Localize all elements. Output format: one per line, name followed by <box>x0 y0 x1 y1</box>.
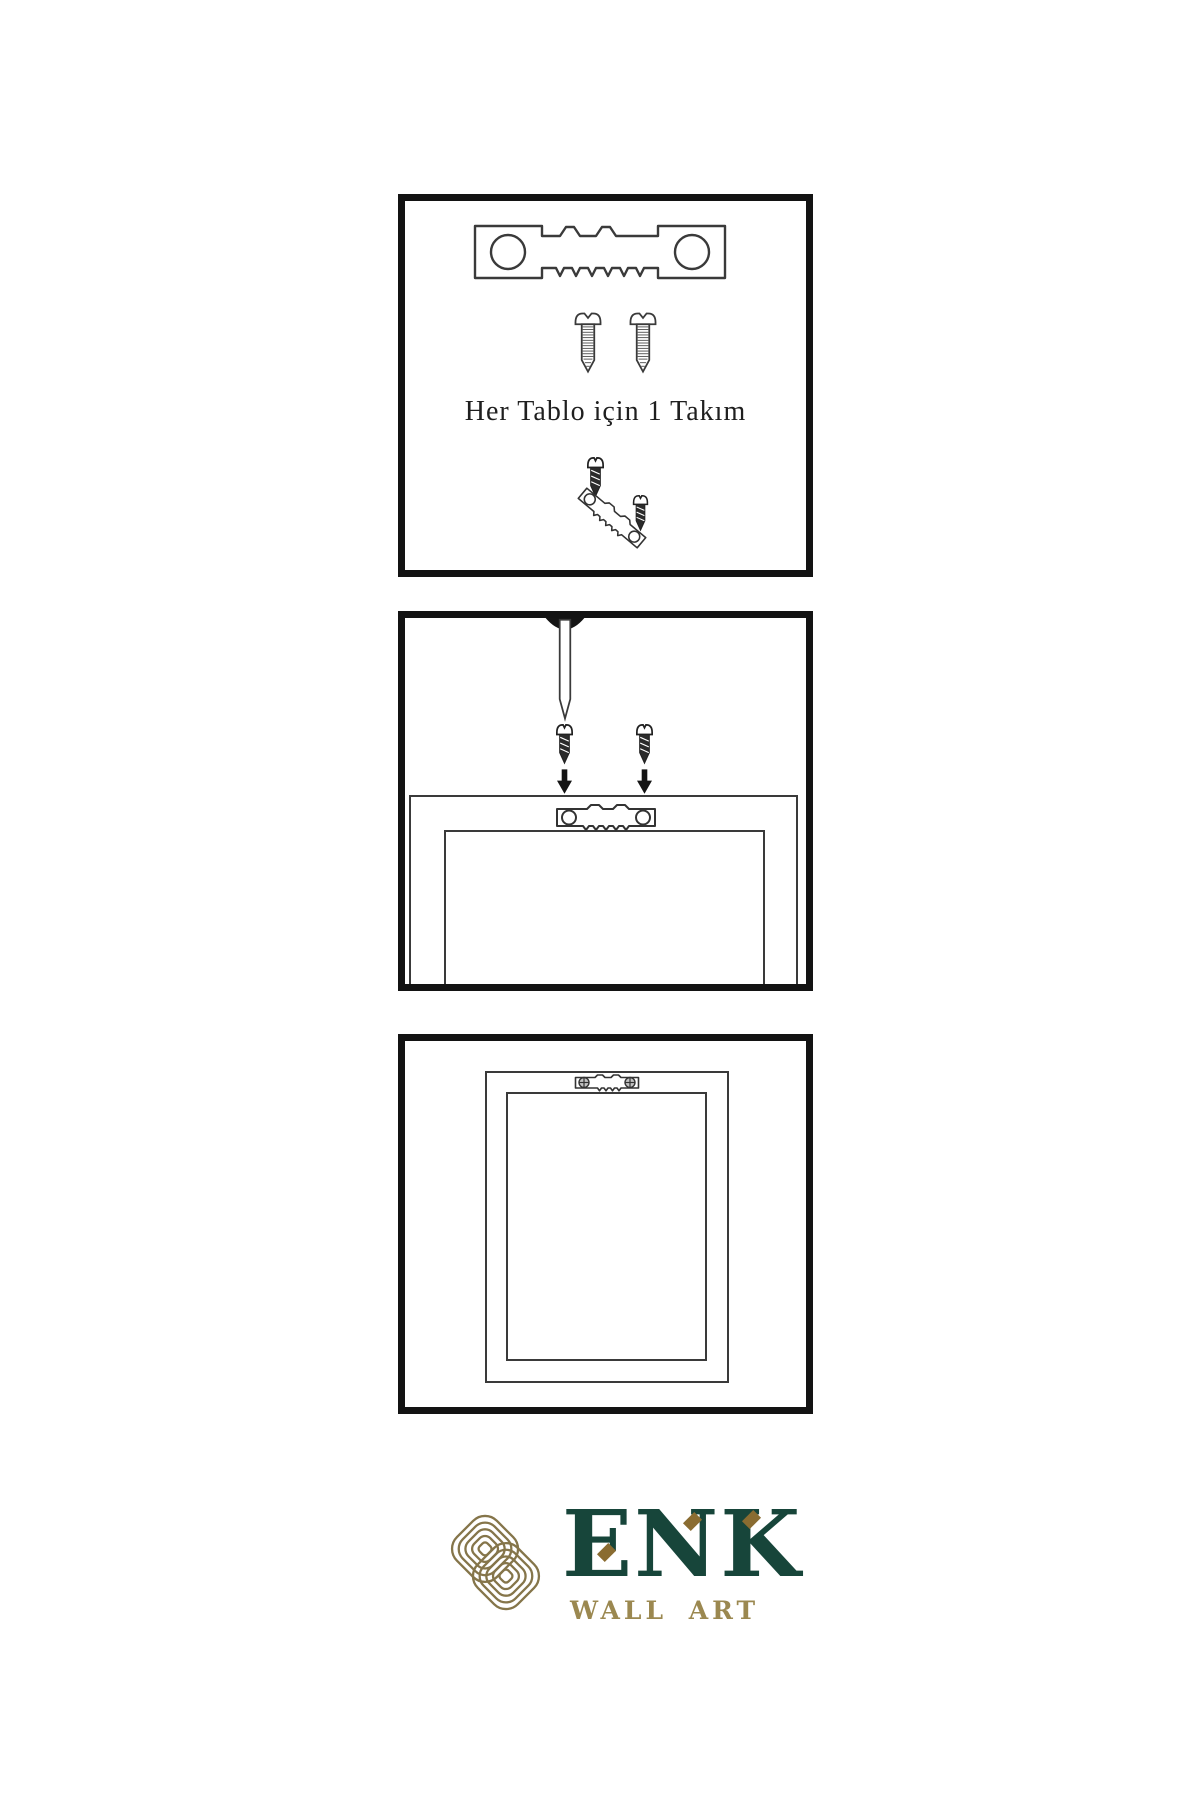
installed-hanger-icon <box>574 1073 640 1093</box>
kit-caption: Her Tablo için 1 Takım <box>405 396 806 428</box>
dark-screw-icon <box>631 493 650 533</box>
brand-subtitle: WALL ART <box>570 1596 759 1625</box>
product-guide-image: Her Tablo için 1 Takım <box>0 0 1200 1800</box>
frame-inner-outline <box>444 830 765 984</box>
dark-screw-icon <box>634 722 655 766</box>
dark-screw-icon <box>554 722 575 766</box>
knot-emblem-icon <box>438 1502 553 1623</box>
screw-icon <box>626 306 660 380</box>
brand-name: ENK <box>562 1498 802 1590</box>
wall-nail-icon <box>542 618 588 722</box>
screw-icon <box>571 306 605 380</box>
wall-mounting-panel <box>398 611 813 991</box>
hung-frame-panel <box>398 1034 813 1414</box>
arrow-down-icon <box>637 769 652 794</box>
frame-inner-outline <box>506 1092 707 1361</box>
sawtooth-hanger-icon <box>472 223 728 281</box>
arrow-down-icon <box>557 769 572 794</box>
hardware-kit-panel: Her Tablo için 1 Takım <box>398 194 813 577</box>
sawtooth-hanger-icon <box>555 803 657 832</box>
